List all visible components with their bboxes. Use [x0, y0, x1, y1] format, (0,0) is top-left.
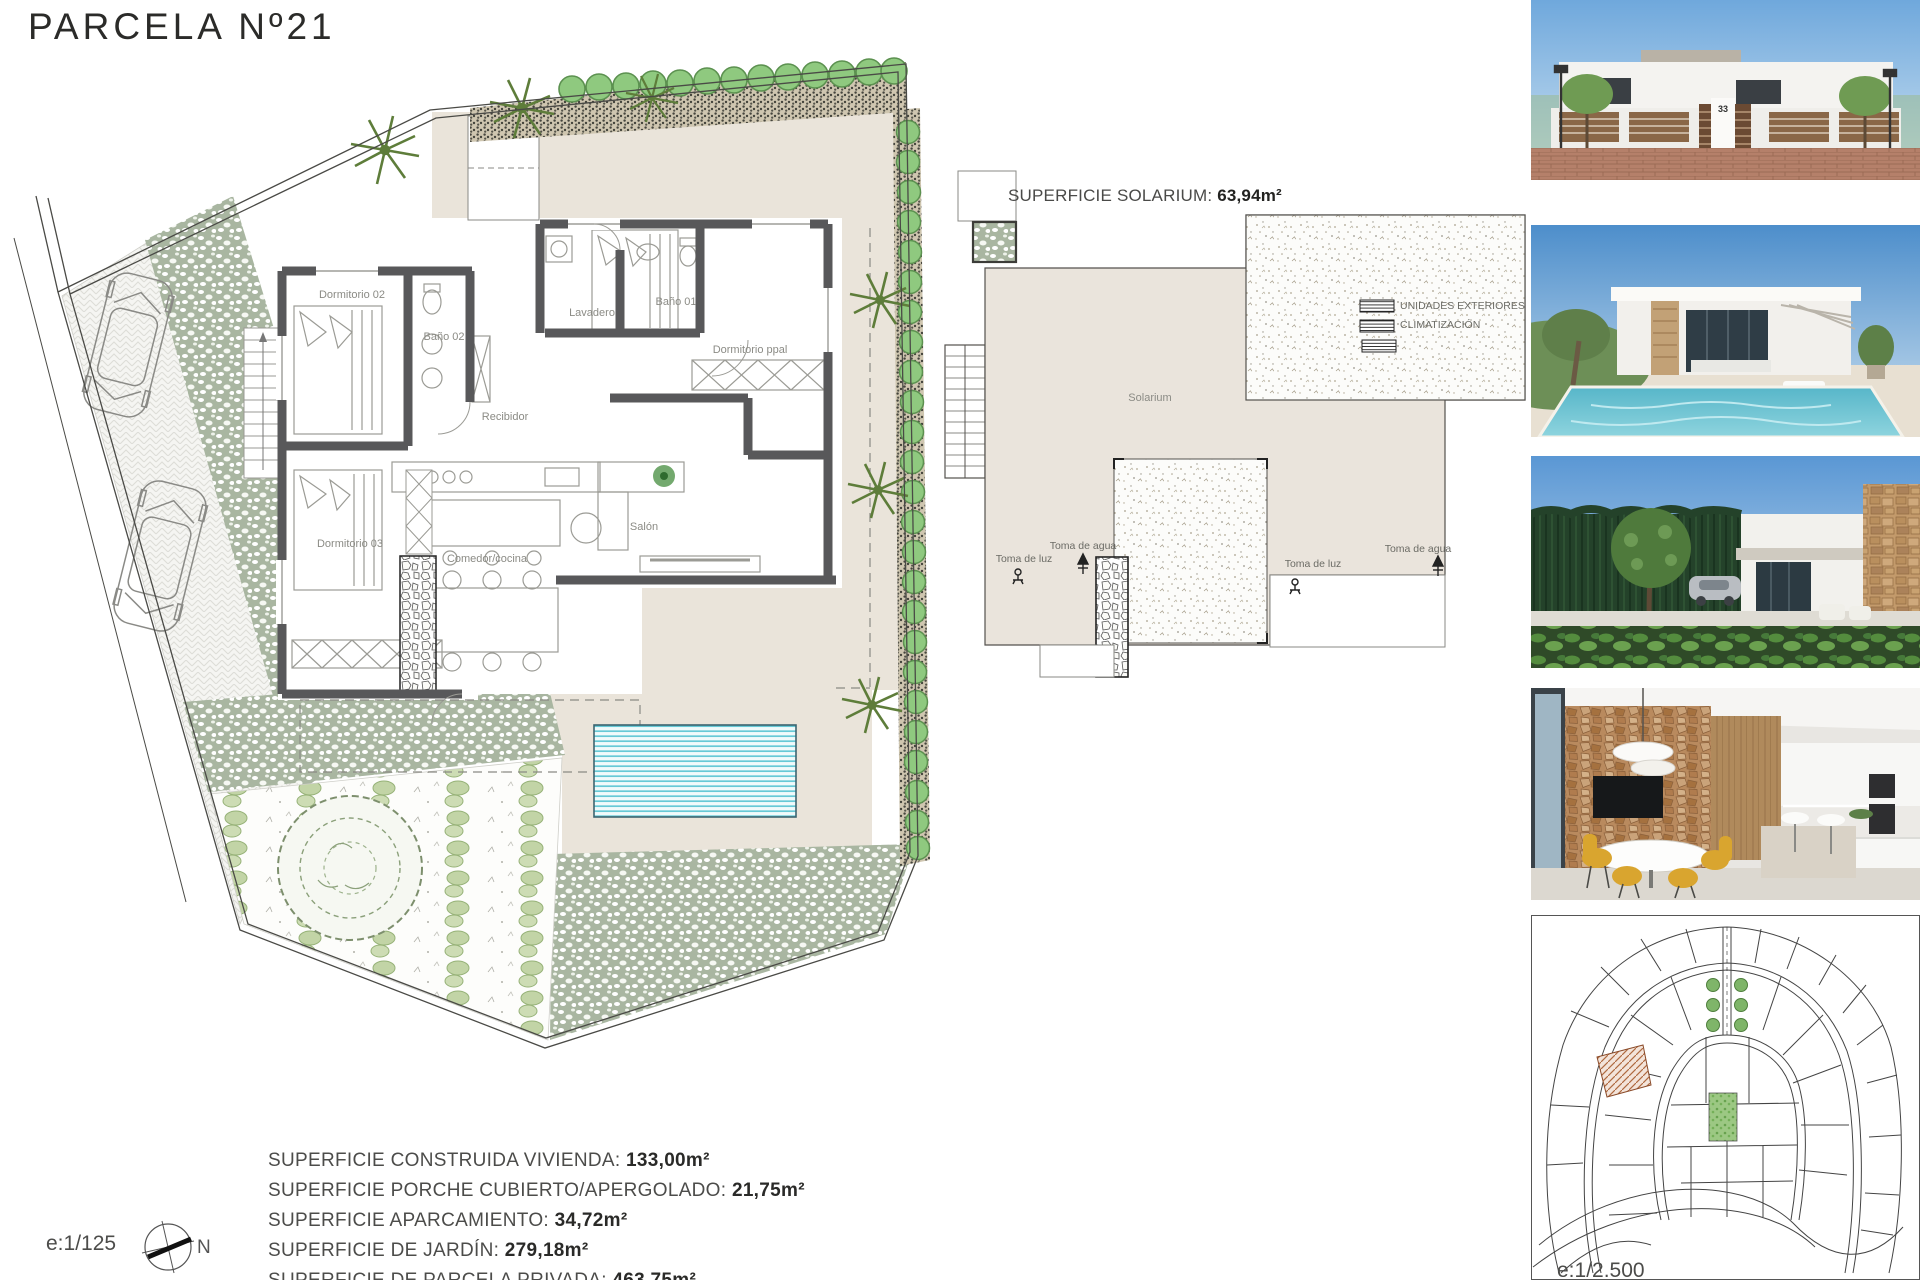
stat-row: SUPERFICIE DE PARCELA PRIVADA: 463,75m² — [268, 1270, 805, 1280]
light-tap-label-right: Toma de luz — [1285, 558, 1342, 570]
room-label-dorm2: Dormitorio 02 — [319, 289, 385, 301]
plan-scale: e:1/125 — [46, 1232, 116, 1256]
room-label-laundry: Lavadero — [569, 307, 615, 319]
compass: N — [142, 1221, 211, 1273]
vegetable-plants — [1531, 626, 1920, 668]
ac-units — [1360, 300, 1396, 352]
room-label-living: Salón — [630, 521, 658, 533]
stone-column — [400, 556, 436, 694]
ac-units-label-1: UNIDADES EXTERIORES — [1400, 300, 1525, 312]
gravel-area-center — [1114, 459, 1267, 643]
solarium-plan: Solarium UNIDADES EXTERIORES CLIMATIZACI… — [945, 171, 1525, 677]
water-tap-label-left: Toma de agua — [1050, 540, 1117, 552]
garden-area — [210, 758, 562, 1040]
solarium-surface-label: SUPERFICIE SOLARIUM: — [1008, 186, 1212, 205]
island — [1761, 826, 1856, 878]
room-label-dorm3: Dormitorio 03 — [317, 538, 383, 550]
photo-kitchen-interior — [1531, 688, 1920, 900]
pool-water — [1539, 387, 1903, 437]
photo-pool-villa — [1531, 225, 1920, 437]
room-label-master: Dormitorio ppal — [713, 344, 788, 356]
solarium-stairs — [945, 345, 985, 478]
solarium-planter — [973, 222, 1016, 262]
room-label-kitchen: Comedor/cocina — [447, 553, 528, 565]
plan-sheet: PARCELA Nº21 — [0, 0, 1920, 1280]
plan-scale-label: e:1/125 — [46, 1232, 116, 1255]
solarium-surface-title: SUPERFICIE SOLARIUM: 63,94m² — [1008, 186, 1282, 206]
stat-row: SUPERFICIE DE JARDÍN: 279,18m² — [268, 1240, 805, 1262]
swimming-pool — [594, 725, 796, 817]
photo-garden-side — [1531, 456, 1920, 668]
photo-street-facade: 33 — [1531, 0, 1920, 180]
stat-row: SUPERFICIE CONSTRUIDA VIVIENDA: 133,00m² — [268, 1150, 805, 1172]
site-map-scale-label: e:1/2.500 — [1557, 1259, 1645, 1280]
solarium-surface-value: 63,94m² — [1217, 186, 1282, 205]
light-tap-label-left: Toma de luz — [996, 553, 1053, 565]
room-label-bath2: Baño 02 — [424, 331, 465, 343]
house-number: 33 — [1718, 104, 1728, 114]
surface-statistics: SUPERFICIE CONSTRUIDA VIVIENDA: 133,00m²… — [268, 1150, 805, 1280]
ac-units-label-2: CLIMATIZACIÓN — [1400, 318, 1480, 331]
water-tap-label-right: Toma de agua — [1385, 543, 1452, 555]
solarium-room-label: Solarium — [1128, 392, 1171, 404]
stat-row: SUPERFICIE PORCHE CUBIERTO/APERGOLADO: 2… — [268, 1180, 805, 1202]
tv — [1593, 776, 1663, 818]
stat-row: SUPERFICIE APARCAMIENTO: 34,72m² — [268, 1210, 805, 1232]
urbanization-site-map: e:1/2.500 — [1531, 915, 1920, 1280]
room-label-bath1: Baño 01 — [656, 296, 697, 308]
room-label-hall: Recibidor — [482, 411, 529, 423]
green-zone — [1709, 1093, 1737, 1141]
compass-north-label: N — [197, 1237, 211, 1258]
parcel-plan: Dormitorio 02 Baño 02 Lavadero Baño 01 D… — [14, 58, 930, 1048]
